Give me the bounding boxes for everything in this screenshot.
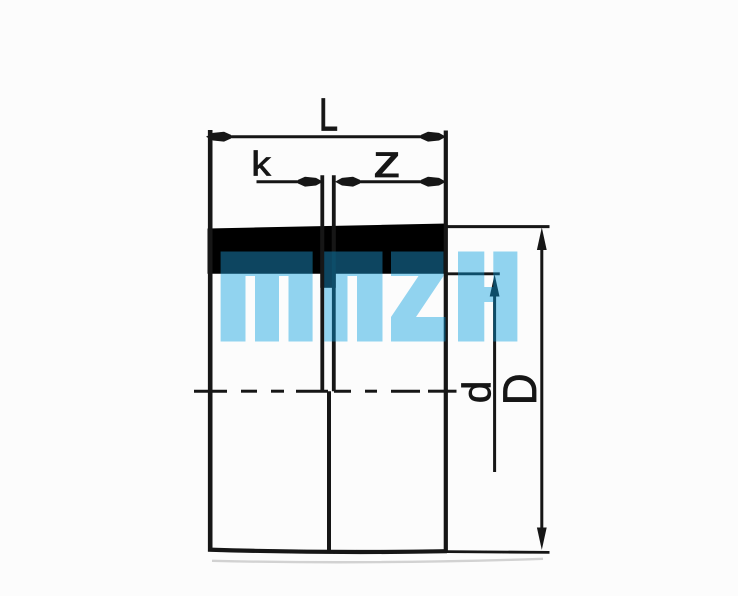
svg-text:D: D	[494, 373, 547, 405]
svg-text:k: k	[251, 145, 271, 183]
svg-text:z: z	[373, 136, 401, 187]
svg-text:L: L	[319, 89, 338, 141]
